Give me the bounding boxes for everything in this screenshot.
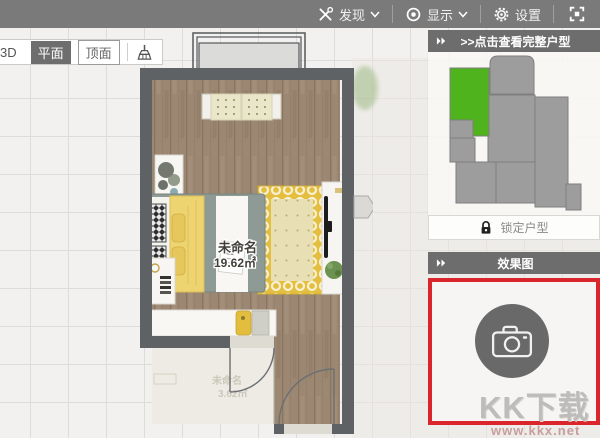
floorplan-svg: 未命名 3.62㎡ (138, 28, 373, 438)
lock-icon (479, 220, 493, 235)
fullscreen-button[interactable] (554, 0, 600, 28)
watermark-brand: KK下载 (479, 382, 590, 427)
take-snapshot-button[interactable] (475, 304, 549, 378)
chevron-down-icon (458, 11, 468, 18)
collapse-panel-icon[interactable] (436, 259, 447, 267)
minimap-room[interactable] (488, 95, 535, 162)
minimap-balcony[interactable] (490, 56, 534, 94)
shelf-books[interactable] (148, 258, 175, 304)
house-layout-minimap[interactable] (428, 52, 600, 215)
topbar: 发现 显示 设置 (0, 0, 600, 28)
minimap-room[interactable] (535, 97, 568, 207)
render-header-label: 效果图 (455, 255, 600, 272)
clear-canvas-button[interactable] (135, 43, 154, 62)
minimap-room[interactable] (566, 184, 581, 210)
minimap-svg (428, 52, 600, 215)
plant (325, 261, 343, 279)
chevron-down-icon (370, 11, 380, 18)
wall-marker (354, 196, 373, 218)
room-name: 未命名 (217, 240, 257, 255)
tools-icon (317, 6, 334, 23)
lock-layout-label: 锁定户型 (500, 219, 548, 236)
adjacent-room-name: 未命名 (211, 374, 242, 387)
door-opening (230, 336, 274, 348)
divider (127, 43, 128, 61)
lock-layout-button[interactable]: 锁定户型 (428, 215, 600, 240)
view-toolbar: 3D 平面 顶面 (0, 39, 163, 65)
render-panel-header[interactable]: 效果图 (428, 252, 600, 274)
layout-header-label: >>点击查看完整户型 (455, 33, 600, 50)
adjacent-room-area: 3.62㎡ (218, 387, 247, 400)
watermark-site: www.kkx.net (491, 423, 580, 438)
camera-icon (491, 324, 533, 358)
tab-plan[interactable]: 平面 (31, 41, 71, 64)
display-menu[interactable]: 显示 (393, 0, 480, 28)
settings-label: 设置 (515, 5, 541, 24)
desk[interactable] (146, 310, 276, 336)
collapse-panel-icon[interactable] (436, 37, 447, 45)
bench[interactable] (202, 94, 281, 120)
minimap-room[interactable] (450, 138, 475, 162)
room-area: 19.62㎡ (214, 255, 256, 270)
shelf-plant[interactable] (155, 155, 183, 200)
discover-menu[interactable]: 发现 (305, 0, 392, 28)
fullscreen-icon (568, 5, 586, 23)
patterned-pillow (151, 204, 166, 242)
gear-icon (493, 6, 510, 23)
tab-3d[interactable]: 3D (0, 43, 24, 62)
door-opening (284, 424, 332, 434)
minimap-room[interactable] (450, 120, 473, 138)
layout-panel-header[interactable]: >>点击查看完整户型 (428, 30, 600, 52)
adjacent-room-bottom[interactable]: 未命名 3.62㎡ (152, 348, 274, 424)
rug[interactable] (258, 186, 326, 294)
minimap-room[interactable] (496, 162, 535, 203)
discover-label: 发现 (339, 5, 365, 24)
broom-icon (135, 43, 154, 62)
tv-console[interactable] (322, 182, 344, 294)
floorplan-designer-app: 发现 显示 设置 (0, 0, 600, 438)
settings-menu[interactable]: 设置 (481, 0, 553, 28)
desk-chair (236, 311, 251, 335)
minimap-room[interactable] (456, 162, 496, 203)
display-label: 显示 (427, 5, 453, 24)
tab-ceiling[interactable]: 顶面 (78, 40, 120, 65)
eye-icon (405, 6, 422, 23)
